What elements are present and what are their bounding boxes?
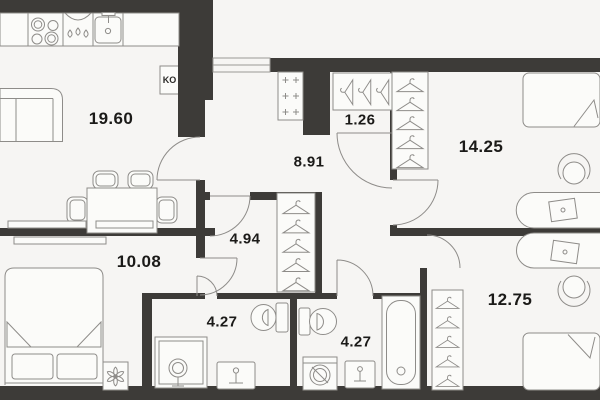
laptop-icon xyxy=(551,240,580,263)
wardrobe-hangers-icon xyxy=(277,193,315,292)
bed xyxy=(523,333,600,390)
sofa xyxy=(0,89,63,142)
door-arc xyxy=(427,235,460,268)
toilet-icon xyxy=(299,308,337,335)
room-label-closet: 1.26 xyxy=(345,112,376,129)
door-arc xyxy=(200,258,237,295)
wardrobe-hangers-icon xyxy=(432,290,463,390)
door-arc xyxy=(337,260,373,296)
floor-plan-drawing xyxy=(0,0,600,400)
floor-plan: KO 19.608.911.2614.254.9410.084.274.2712… xyxy=(0,0,600,400)
electrical-panel-icon xyxy=(278,72,303,120)
boiler-label: KO xyxy=(160,66,179,94)
kitchen-counter xyxy=(0,13,179,46)
washing-machine-icon xyxy=(303,357,337,390)
door-arc xyxy=(337,133,392,188)
door-arc xyxy=(157,137,200,180)
room-label-bedroom-left: 10.08 xyxy=(117,252,162,272)
desk-chair xyxy=(558,154,590,184)
room-label-bathroom-shower: 4.27 xyxy=(207,314,238,331)
bathroom-sink-icon xyxy=(345,361,375,388)
laptop-icon xyxy=(549,198,578,221)
room-label-bathroom-tub: 4.27 xyxy=(341,334,372,351)
bed xyxy=(523,73,600,127)
closet-hangers-icon xyxy=(333,73,392,110)
room-label-corridor: 4.94 xyxy=(230,231,261,248)
door-arc xyxy=(393,180,438,225)
bathroom-sink-icon xyxy=(217,362,255,389)
room-label-living-kitchen: 19.60 xyxy=(89,109,134,129)
shower-icon xyxy=(155,337,207,388)
desk xyxy=(517,233,600,268)
window xyxy=(213,58,270,72)
double-bed xyxy=(5,268,103,385)
desk xyxy=(516,193,600,229)
toilet-icon xyxy=(251,303,288,332)
kitchen-sink-icon xyxy=(95,13,121,44)
bathtub-icon xyxy=(382,296,420,389)
desk-chair xyxy=(558,276,590,306)
room-label-bedroom-bottom-right: 12.75 xyxy=(488,290,533,310)
plant-icon xyxy=(103,362,128,390)
wardrobe-hangers-icon xyxy=(392,72,428,169)
room-label-bedroom-top-right: 14.25 xyxy=(459,137,504,157)
room-label-hallway: 8.91 xyxy=(294,154,325,171)
